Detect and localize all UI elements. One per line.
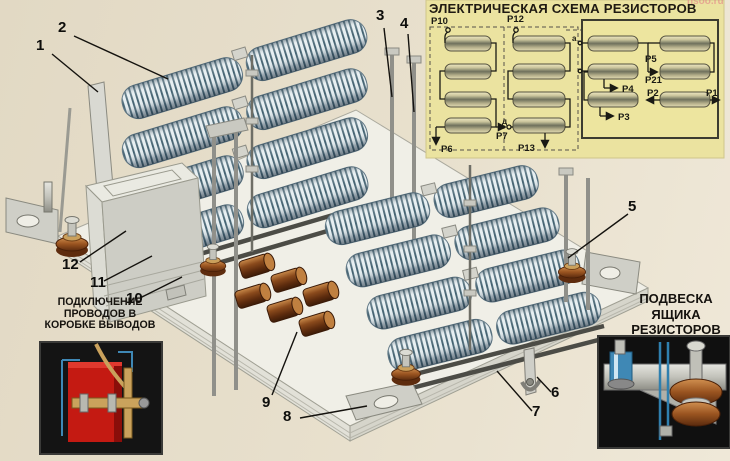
callout-7: 7	[532, 404, 540, 419]
label-p7: Р7	[496, 131, 508, 142]
callout-12: 12	[62, 257, 79, 272]
callout-3: 3	[376, 8, 384, 23]
label-a: а	[572, 34, 577, 43]
label-p6: Р6	[441, 144, 453, 155]
end-frame-strut	[60, 108, 70, 232]
schematic-title: ЭЛЕКТРИЧЕСКАЯ СХЕМА РЕЗИСТОРОВ	[429, 1, 719, 16]
callout-9: 9	[262, 395, 270, 410]
callout-1: 1	[36, 38, 44, 53]
caption-terminal-box-line3: КОРОБКЕ ВЫВОДОВ	[34, 320, 166, 332]
caption-suspension-line3: РЕЗИСТОРОВ	[620, 322, 730, 338]
left-foot-bolt	[44, 182, 52, 212]
caption-suspension-line2: ЯЩИКА	[620, 307, 730, 323]
inset-rubber-washer-bottom	[672, 402, 720, 426]
inset-suspension-photo	[598, 336, 730, 448]
caption-terminal-box-line1: ПОДКЛЮЧЕНИЕ	[34, 297, 166, 309]
callout-5: 5	[628, 199, 636, 214]
poster-illustration: Р10 Р12 Р7 Р6 Р13 Р5 Р21 Р4 Р3 Р2 Р1 а д	[0, 0, 730, 461]
label-p13: Р13	[518, 143, 535, 154]
schematic-panel: Р10 Р12 Р7 Р6 Р13 Р5 Р21 Р4 Р3 Р2 Р1 а д	[426, 0, 724, 158]
inset-terminal-box-photo	[40, 342, 162, 454]
left-foot-hole	[17, 215, 39, 227]
label-p1: Р1	[706, 88, 718, 99]
label-p3: Р3	[618, 112, 630, 123]
label-p10: Р10	[431, 16, 448, 27]
caption-terminal-box: ПОДКЛЮЧЕНИЕ ПРОВОДОВ В КОРОБКЕ ВЫВОДОВ	[34, 297, 166, 332]
label-p2: Р2	[647, 88, 659, 99]
callout-2: 2	[58, 20, 66, 35]
callout-8: 8	[283, 409, 291, 424]
label-p4: Р4	[622, 84, 634, 95]
watermark: nsoo.ru	[687, 0, 724, 7]
right-foot-hole	[600, 267, 620, 279]
caption-suspension-line1: ПОДВЕСКА	[620, 291, 730, 307]
label-d: д	[502, 117, 507, 126]
label-p21: Р21	[645, 75, 663, 86]
callout-4: 4	[400, 16, 408, 31]
callout-11: 11	[90, 275, 106, 290]
label-p5: Р5	[645, 54, 657, 65]
callout-6: 6	[551, 385, 559, 400]
resistor-box-poster: Р10 Р12 Р7 Р6 Р13 Р5 Р21 Р4 Р3 Р2 Р1 а д	[0, 0, 730, 461]
caption-suspension: ПОДВЕСКА ЯЩИКА РЕЗИСТОРОВ	[620, 291, 730, 338]
